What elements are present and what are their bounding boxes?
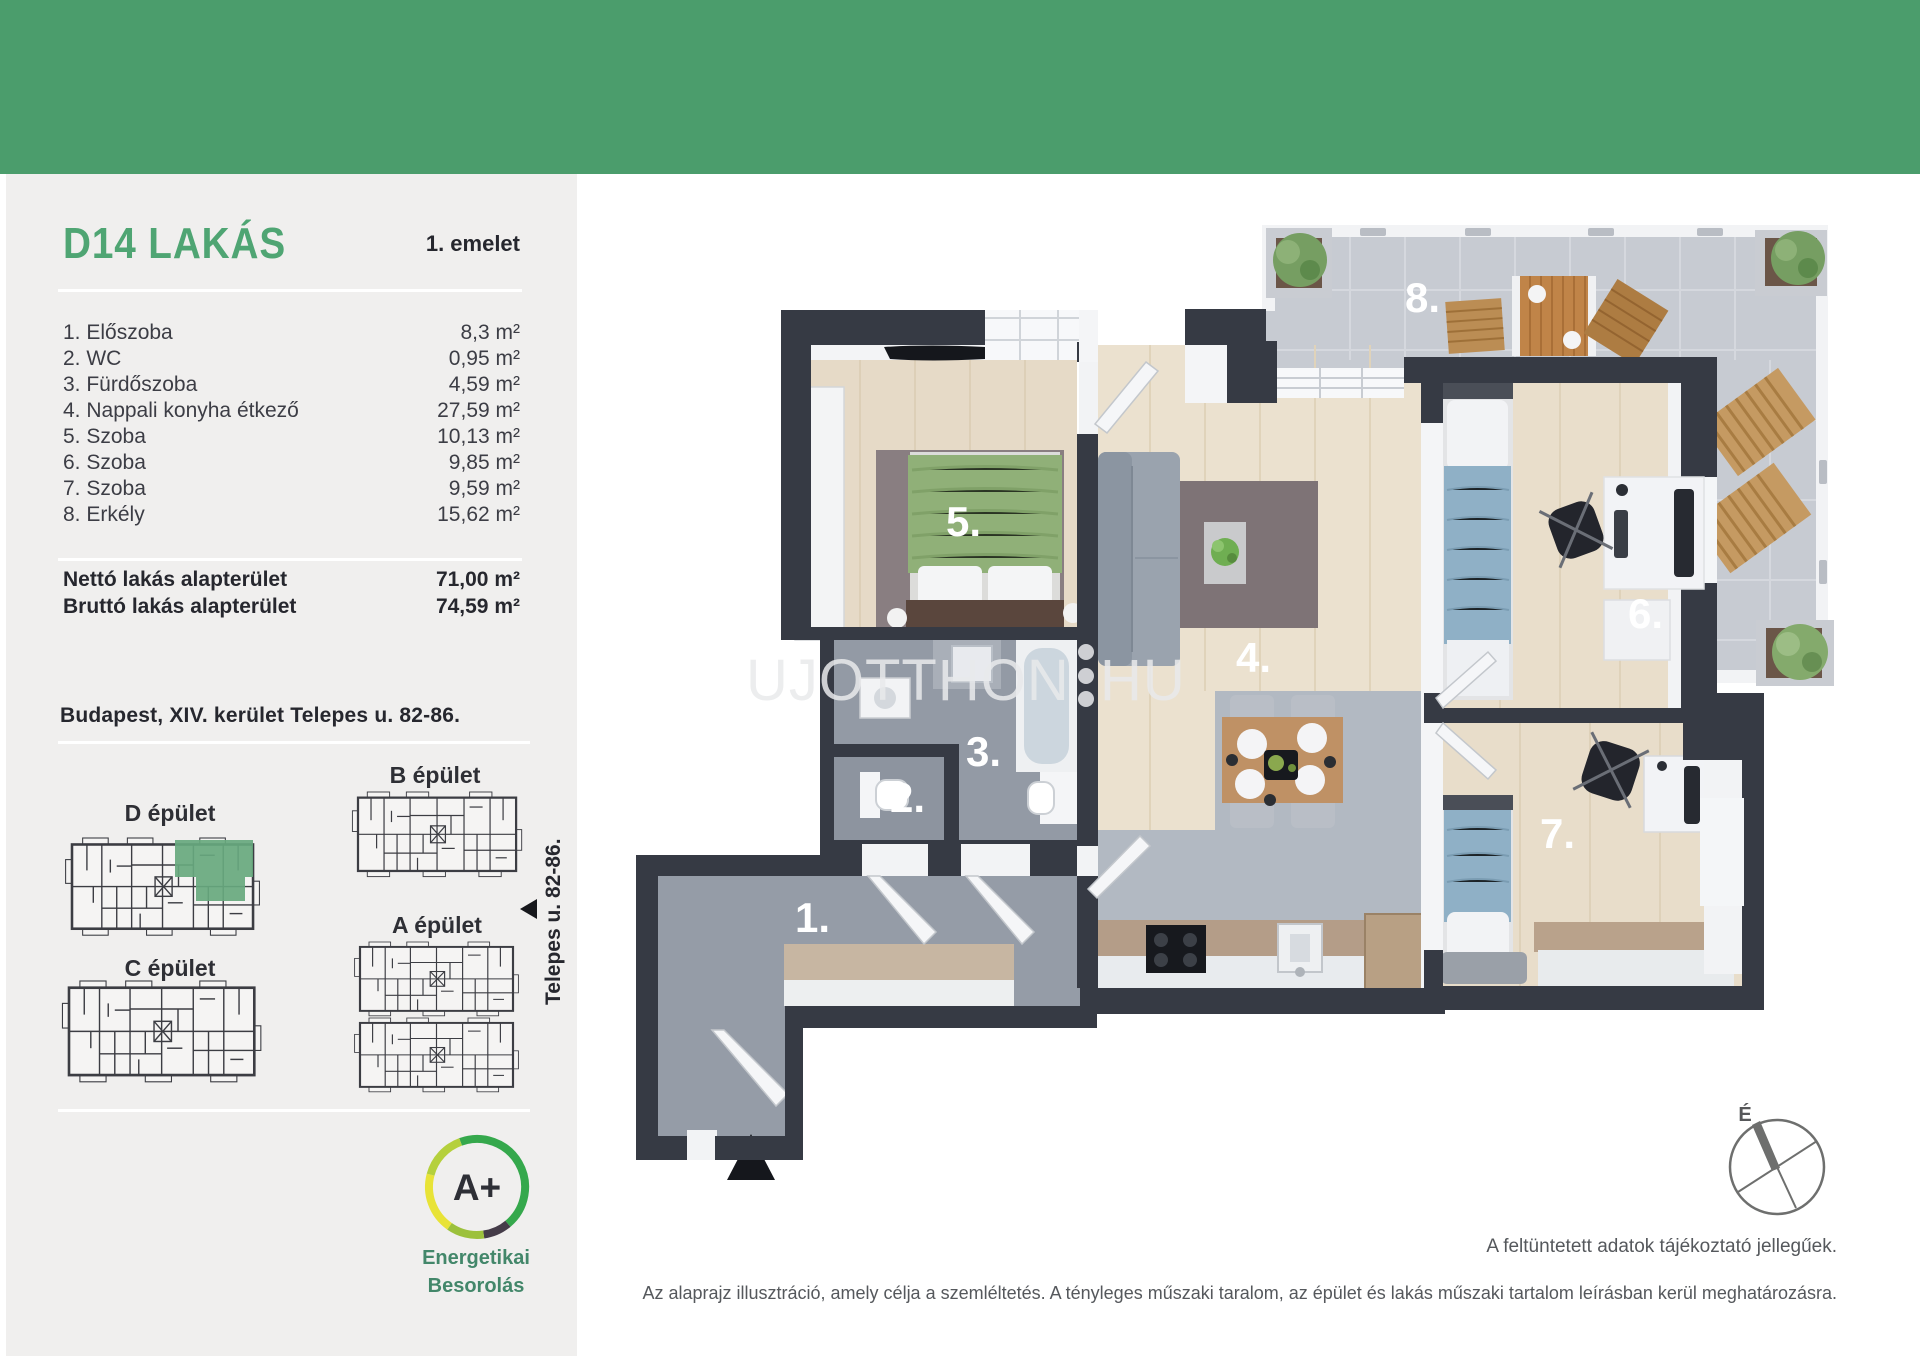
svg-text:A+: A+ (453, 1167, 501, 1208)
svg-text:6.: 6. (1628, 590, 1663, 637)
svg-text:Az alaprajz illusztráció, amel: Az alaprajz illusztráció, amely célja a … (642, 1283, 1837, 1303)
svg-text:5.: 5. (946, 498, 981, 545)
svg-text:4.: 4. (1236, 634, 1271, 681)
svg-text:HU: HU (1100, 648, 1186, 713)
svg-text:8.: 8. (1405, 274, 1440, 321)
svg-text:2.: 2. (890, 774, 925, 821)
svg-text:3.: 3. (966, 728, 1001, 775)
svg-text:É: É (1738, 1103, 1751, 1126)
svg-text:7.: 7. (1540, 810, 1575, 857)
svg-text:1.: 1. (795, 894, 830, 941)
svg-text:UJOTTHON: UJOTTHON (746, 648, 1070, 713)
svg-text:A feltüntetett adatok tájékozt: A feltüntetett adatok tájékoztató jelleg… (1486, 1236, 1837, 1257)
